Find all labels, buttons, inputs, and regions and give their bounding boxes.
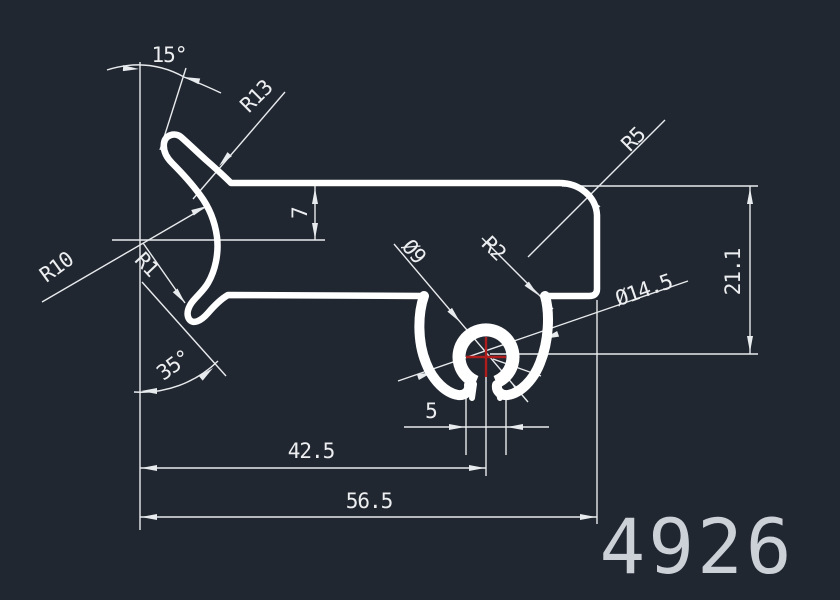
claw-slot-wall-left[interactable]: [472, 384, 474, 398]
label-slot-width[interactable]: 5: [425, 399, 437, 423]
cad-canvas: 15° R13 R10 R1 7 R5 Ø9 R2 Ø14.5 21.1 35°…: [0, 0, 840, 600]
part-number: 4926: [599, 502, 794, 591]
label-angle-top[interactable]: 15°: [152, 43, 187, 67]
label-wall-offset[interactable]: 7: [288, 207, 312, 219]
label-length-to-center[interactable]: 42.5: [288, 439, 335, 463]
claw-slot-wall-right[interactable]: [498, 384, 500, 398]
label-length-total[interactable]: 56.5: [346, 489, 393, 513]
label-height-right[interactable]: 21.1: [721, 248, 745, 295]
